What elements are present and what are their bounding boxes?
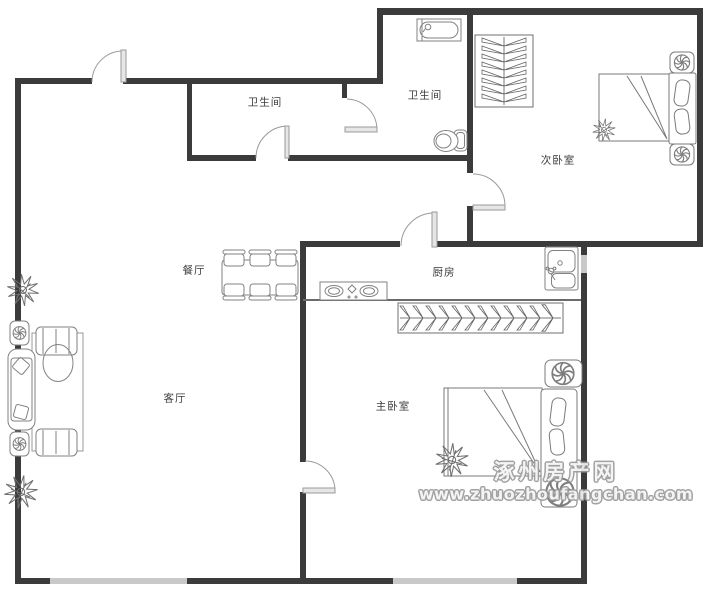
dining-chair-icon: [249, 250, 271, 266]
room-label-living-room: 客厅: [164, 391, 187, 406]
window-icon: [50, 578, 187, 584]
loveseat-icon: [36, 429, 77, 456]
wardrobe-hanger-rail-icon: [475, 35, 533, 107]
room-label-bathroom-1: 卫生间: [248, 95, 283, 110]
kitchen-door-icon: [401, 212, 437, 247]
dining-chair-icon: [249, 284, 271, 300]
window-icon: [393, 578, 517, 584]
sofa-icon: [8, 349, 35, 430]
room-label-dining-room: 餐厅: [183, 263, 206, 278]
secondary-bedroom-furniture: [475, 35, 696, 165]
stove-icon: [320, 282, 387, 300]
secondary-bedroom-door-icon: [473, 174, 505, 210]
room-label-secondary-bedroom: 次卧室: [541, 153, 576, 168]
kitchen-sink-icon: [545, 247, 578, 290]
dining-set: [222, 250, 298, 300]
living-room-furniture: [2, 272, 83, 510]
room-label-bathroom-2: 卫生间: [408, 88, 443, 103]
dining-chair-icon: [223, 250, 245, 266]
wardrobe-hanger-rail-icon: [398, 303, 563, 333]
double-bed-icon: [599, 73, 696, 144]
dining-chair-icon: [223, 284, 245, 300]
master-bedroom-door-icon: [303, 461, 335, 493]
floor-plan-page: 卫生间 卫生间 次卧室 餐厅 厨房 客厅 主卧室 涿州房产网 www.zhuoz…: [0, 0, 709, 600]
room-label-kitchen: 厨房: [433, 265, 456, 280]
entry-door-icon: [92, 50, 126, 82]
dining-chair-icon: [275, 284, 297, 300]
watermark-site-name: 涿州房产网: [494, 456, 619, 486]
toilet-icon: [434, 130, 467, 152]
floor-plan-drawing: [0, 0, 709, 600]
dining-chair-icon: [275, 250, 297, 266]
loveseat-icon: [36, 327, 77, 355]
bathtub-icon: [417, 19, 461, 41]
watermark-site-url: www.zhuozhoufangchan.com: [419, 485, 693, 504]
bathroom1-door-icon: [256, 126, 289, 158]
room-label-master-bedroom: 主卧室: [376, 399, 411, 414]
plant-icon: [4, 272, 42, 308]
window-icon: [581, 255, 587, 273]
bathroom2-door-icon: [345, 99, 377, 132]
bathroom-fixtures: [417, 19, 467, 152]
